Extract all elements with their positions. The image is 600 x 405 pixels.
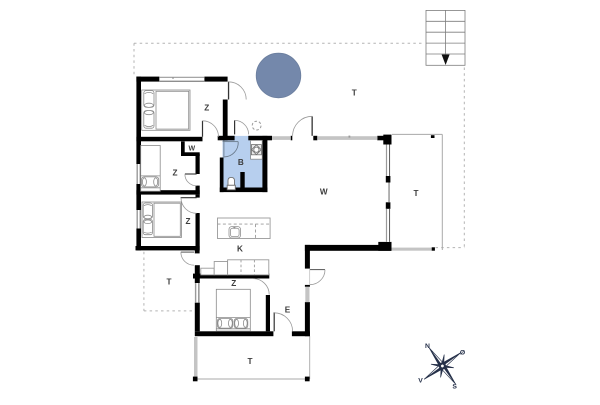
svg-text:S: S	[452, 384, 457, 391]
svg-text:T: T	[413, 189, 418, 198]
svg-text:T: T	[166, 278, 171, 287]
svg-text:B: B	[238, 158, 244, 167]
svg-text:W: W	[320, 187, 328, 196]
svg-text:T: T	[247, 357, 252, 366]
svg-text:V: V	[418, 378, 423, 385]
svg-text:K: K	[237, 245, 243, 254]
svg-text:Z: Z	[172, 169, 177, 178]
svg-text:E: E	[285, 306, 291, 315]
svg-text:Z: Z	[204, 104, 209, 113]
svg-text:N: N	[425, 343, 430, 350]
svg-text:Z: Z	[231, 279, 236, 288]
svg-text:T: T	[352, 89, 357, 98]
svg-text:Ø: Ø	[460, 350, 465, 357]
svg-text:Z: Z	[185, 217, 190, 226]
svg-text:W: W	[188, 145, 195, 152]
